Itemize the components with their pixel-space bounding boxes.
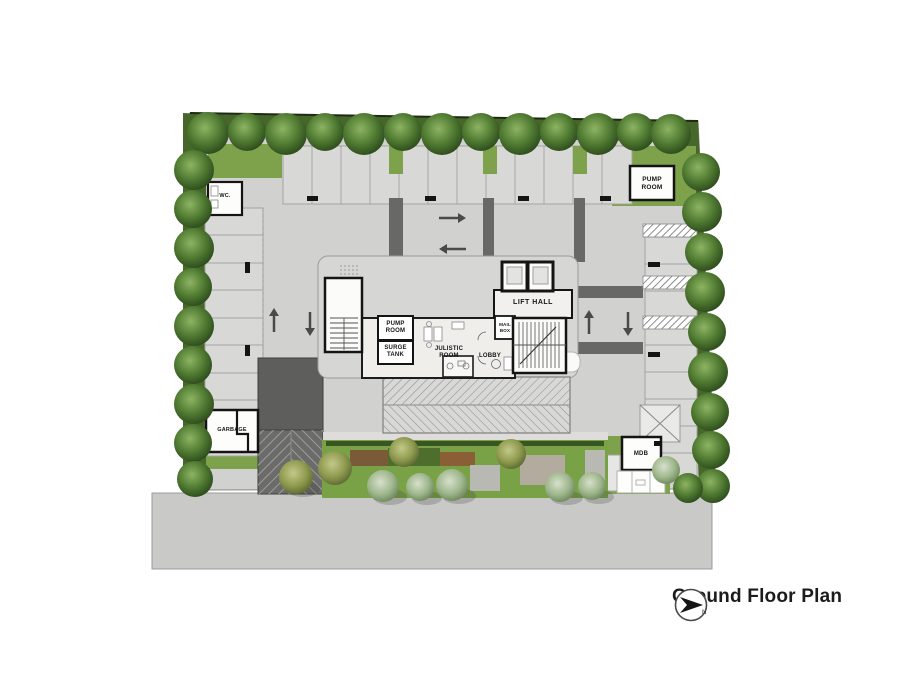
north-letter: N	[702, 610, 706, 616]
plan-caption: N Ground Floor Plan	[672, 586, 842, 608]
ground-floor-plan: WC. PUMP ROOM PUMP ROOM SURGE TANK JULIS…	[0, 0, 900, 689]
north-arrow-icon: N	[672, 586, 710, 624]
canopy-hatch	[383, 377, 570, 433]
